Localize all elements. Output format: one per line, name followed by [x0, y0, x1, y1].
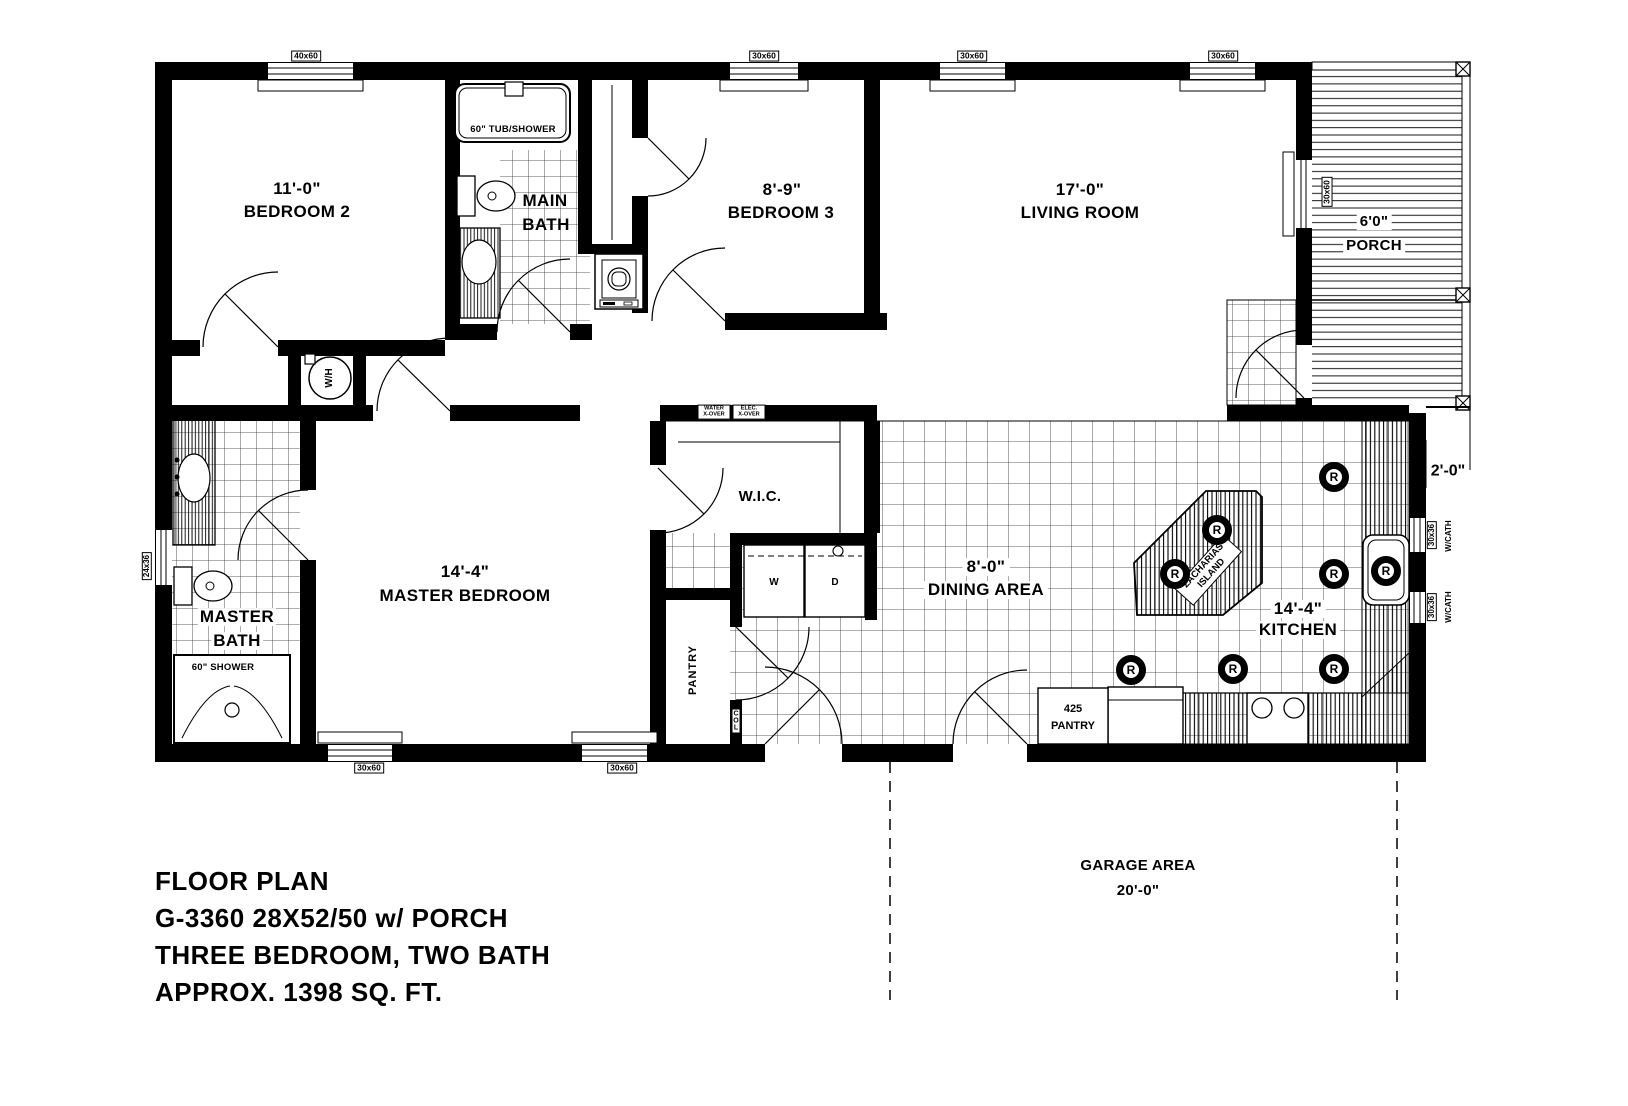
porch-rail-top [1312, 62, 1470, 70]
recessed-light-icon: R [1116, 655, 1146, 685]
bedroom2-dim: 11'-0" [273, 180, 321, 198]
bedroom3-name: BEDROOM 3 [728, 204, 835, 222]
wic-floor [666, 421, 864, 533]
garage-outline [890, 762, 1397, 1000]
kitchen-dim: 14'-4" [1271, 600, 1326, 618]
shower-label: 60" SHOWER [192, 663, 254, 673]
recessed-light-icon: R [1160, 559, 1190, 589]
column-label: COL [732, 709, 741, 734]
window-tag-30x60-porch: 30x60 [1322, 177, 1333, 207]
main-bath-name-2: BATH [522, 216, 570, 234]
garage-dim: 20'-0" [1117, 883, 1160, 899]
window-tag-30x60: 30x60 [957, 51, 987, 62]
porch-rail-right [1462, 62, 1470, 410]
porch-name: PORCH [1343, 238, 1405, 254]
window-30x36 [1410, 592, 1425, 623]
tub-label: 60" TUB/SHOWER [470, 125, 555, 135]
pantry-name: PANTRY [688, 645, 700, 695]
furnace [595, 254, 643, 309]
title-line-3: THREE BEDROOM, TWO BATH [155, 940, 550, 971]
dining-dim: 8'-0" [963, 558, 1010, 576]
window-tag-wcath: W/CATH [1445, 520, 1453, 551]
porch-post [1456, 288, 1470, 302]
corner-pantry-line1: 425 [1064, 704, 1082, 716]
master-bedroom-dim: 14'-4" [441, 563, 490, 581]
master-bath-name-1: MASTER [198, 608, 276, 626]
title-line-2: G-3360 28X52/50 w/ PORCH [155, 903, 508, 934]
bedroom2-name: BEDROOM 2 [244, 203, 351, 221]
cooktop [1247, 693, 1308, 744]
floor-tiles [172, 150, 1409, 744]
master-bath-name-2: BATH [211, 632, 263, 650]
window-30x60 [720, 63, 808, 91]
eave-dim: 2'-0" [1431, 464, 1466, 481]
vanity-sink [455, 228, 500, 318]
window-tag-24x36: 24x36 [142, 552, 152, 580]
window-tag-wcath: W/CATH [1445, 591, 1453, 622]
window-tag-30x60: 30x60 [749, 51, 779, 62]
dining-name: DINING AREA [924, 581, 1048, 599]
dryer-label: D [831, 578, 838, 589]
title-line-1: FLOOR PLAN [155, 866, 329, 897]
porch-post [1456, 62, 1470, 76]
water-heater-label: W/H [325, 368, 336, 387]
water-xover-line2: X-OVER [699, 412, 730, 418]
recessed-light-icon: R [1319, 654, 1349, 684]
recessed-light-icon: R [1218, 654, 1248, 684]
living-room-name: LIVING ROOM [1021, 204, 1140, 222]
window-30x60 [572, 732, 657, 761]
title-line-4: APPROX. 1398 SQ. FT. [155, 977, 442, 1008]
recessed-light-icon: R [1319, 462, 1349, 492]
bedroom3-door [652, 248, 725, 321]
corner-pantry-line2: PANTRY [1051, 721, 1095, 733]
window-30x60 [1180, 63, 1265, 91]
toilet [174, 567, 232, 605]
window-24x36 [156, 530, 172, 585]
main-bath-name-1: MAIN [522, 192, 567, 210]
living-room-dim: 17'-0" [1056, 181, 1105, 199]
window-30x60 [930, 63, 1015, 91]
recessed-light-icon: R [1319, 559, 1349, 589]
window-tag-30x60: 30x60 [607, 763, 637, 774]
water-crossover-label: WATER X-OVER [698, 405, 731, 420]
wic-name: W.I.C. [739, 489, 782, 505]
window-40x60 [258, 63, 363, 91]
main-bath-tile [500, 150, 590, 324]
corner-pantry-box [1038, 688, 1108, 744]
window-30x36 [1410, 518, 1425, 552]
porch-dim: 6'0" [1357, 214, 1392, 230]
bedroom3-closet-door [648, 138, 706, 196]
window-tag-30x36: 30x36 [1427, 521, 1437, 549]
window-30x60-porch [1283, 152, 1311, 236]
bedroom3-dim: 8'-9" [763, 181, 802, 199]
garage-name: GARAGE AREA [1080, 858, 1195, 874]
bedroom2-door [203, 272, 278, 347]
window-tag-30x60: 30x60 [354, 763, 384, 774]
window-tag-30x60: 30x60 [1208, 51, 1238, 62]
recessed-light-icon: R [1371, 556, 1401, 586]
window-tag-30x36: 30x36 [1427, 593, 1437, 621]
window-30x60 [318, 732, 402, 761]
washer-label: W [769, 578, 778, 589]
dishwasher [1108, 687, 1183, 744]
kitchen-name: KITCHEN [1256, 621, 1340, 639]
elec-crossover-label: ELEC. X-OVER [733, 405, 766, 420]
porch-deck [1312, 62, 1470, 410]
window-tag-40x60: 40x60 [291, 51, 321, 62]
vanity-sink [173, 415, 215, 545]
master-bedroom-name: MASTER BEDROOM [380, 587, 551, 605]
elec-xover-line2: X-OVER [734, 412, 765, 418]
entry-tile [1227, 300, 1296, 405]
floor-plan-page: 11'-0" BEDROOM 2 MAIN BATH 8'-9" BEDROOM… [0, 0, 1628, 1106]
recessed-light-icon: R [1202, 515, 1232, 545]
